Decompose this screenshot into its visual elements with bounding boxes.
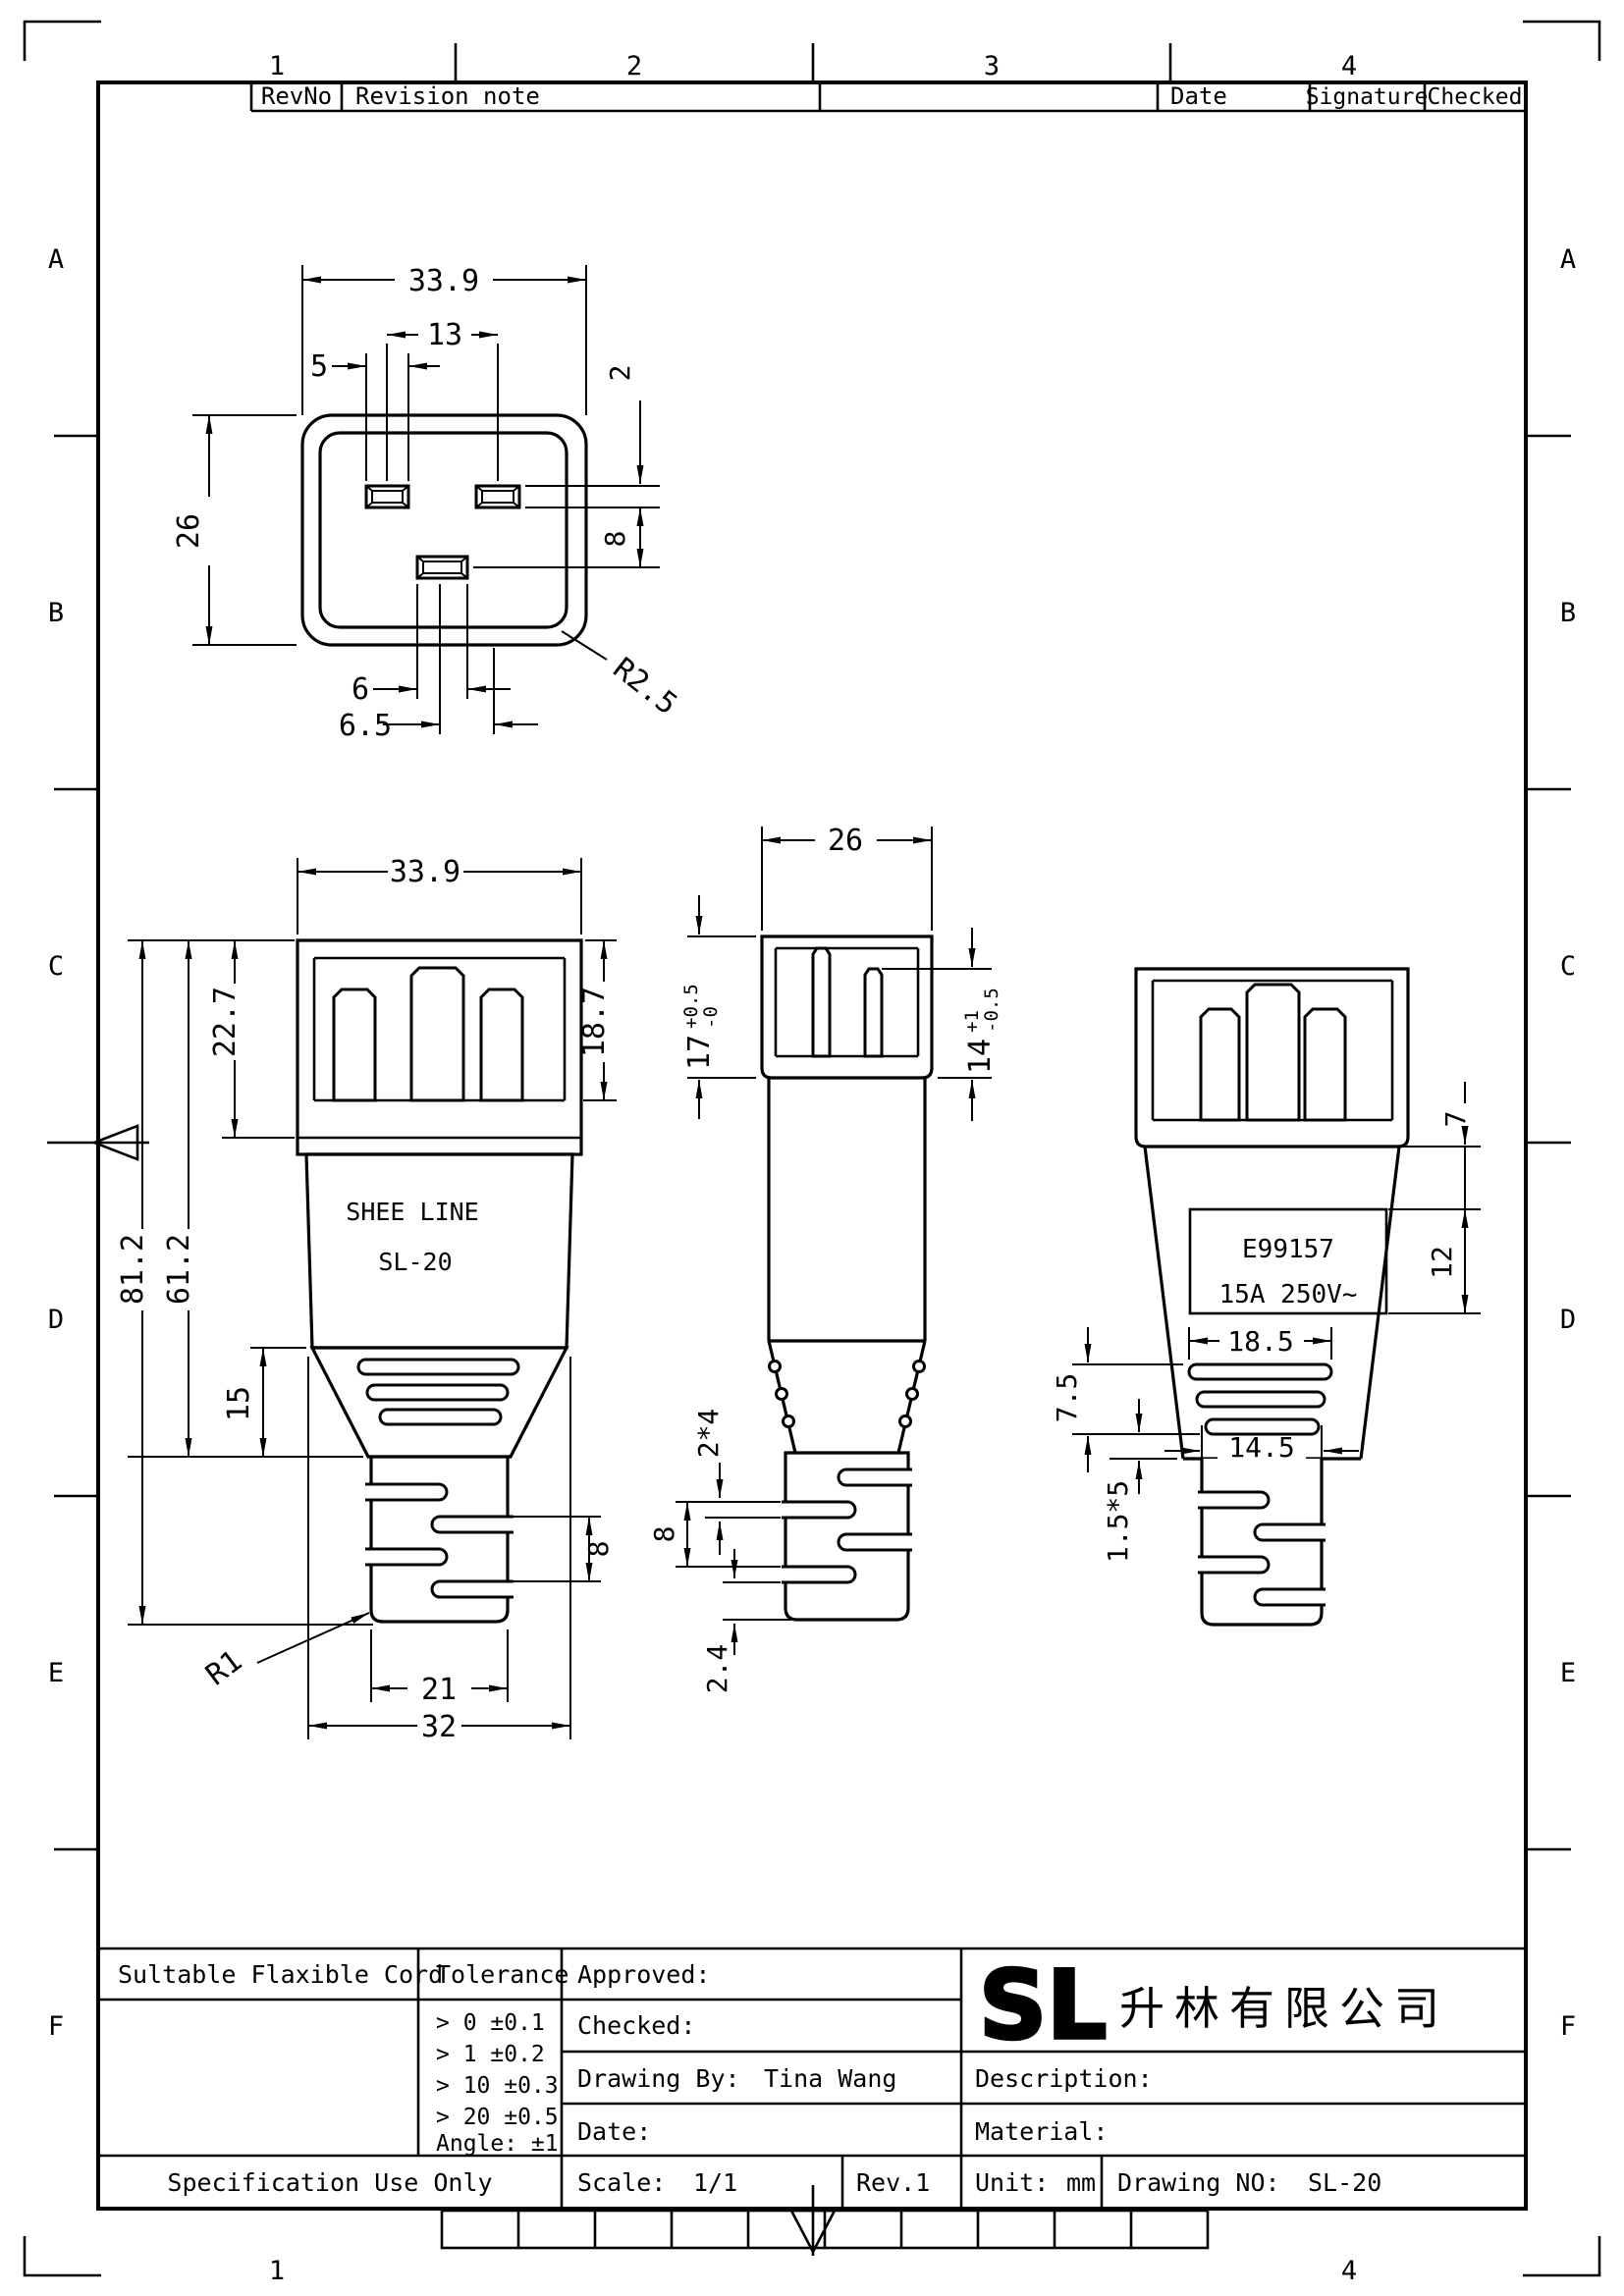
zone-row-b: B	[48, 598, 64, 628]
rear-view: E99157 15A 250V~ 7 12 18.5 7.5 1.5*5 14.…	[1051, 969, 1481, 1625]
zone-row-c: C	[48, 951, 64, 982]
scale-label: Scale:	[577, 2168, 666, 2197]
dim-side-shroud-tol-minus: -0	[700, 1006, 722, 1029]
dim-rear-label-height: 12	[1426, 1246, 1458, 1279]
cert-number: E99157	[1242, 1235, 1334, 1264]
dim-front-bottom-radius: R1	[199, 1644, 248, 1693]
company-logo-icon: SL	[979, 1950, 1107, 2060]
drawing-no-label: Drawing NO:	[1117, 2168, 1280, 2197]
dim-side-slot-pitch: 8	[648, 1526, 680, 1543]
corner-mark-top-left	[25, 22, 101, 61]
side-view-grip-bumps	[770, 1362, 925, 1427]
top-view-body-outline	[302, 415, 586, 645]
corner-mark-bottom-right	[1523, 2236, 1599, 2275]
dim-side-pin-length: 14 +1 -0.5	[961, 988, 1002, 1074]
dim-front-body-width: 32	[421, 1710, 457, 1744]
dim-side-shroud-tol-plus: +0.5	[680, 984, 702, 1029]
corner-mark-bottom-left	[25, 2236, 101, 2275]
tolerance-row: > 0 ±0.1	[436, 2010, 545, 2036]
revision-table: RevNo Revision note Date Signature Check…	[251, 82, 1526, 111]
drawing-no-value: SL-20	[1308, 2168, 1381, 2197]
revision-col-checked: Checked	[1428, 84, 1523, 110]
dim-rear-relief-width: 14.5	[1228, 1431, 1294, 1464]
dim-side-width: 26	[828, 824, 863, 858]
zone-row-c-right: C	[1560, 951, 1576, 982]
dim-side-slot-spec: 2*4	[692, 1409, 725, 1459]
dim-top-slot-thickness: 2	[604, 365, 636, 382]
dim-rear-rib-spec: 1.5*5	[1102, 1480, 1134, 1563]
dim-top-row-offset: 8	[599, 531, 631, 548]
center-mark-bottom-icon	[791, 2185, 835, 2256]
zone-row-d: D	[48, 1305, 64, 1335]
drawing-by-label: Drawing By:	[577, 2064, 740, 2093]
brand-line1: SHEE LINE	[346, 1198, 478, 1226]
top-view: 33.9 13 5 26 2 8 R2.5 6 6.5	[172, 264, 683, 743]
zone-row-e-right: E	[1560, 1658, 1576, 1688]
dim-top-width: 33.9	[408, 264, 479, 298]
company-name: 升林有限公司	[1119, 1982, 1449, 2035]
tolerance-title: Tolerance	[436, 1960, 568, 1989]
scale-value: 1/1	[693, 2168, 737, 2197]
dim-front-shroud-depth: 18.7	[577, 987, 612, 1057]
zone-row-f-right: F	[1560, 2011, 1576, 2042]
dim-top-earth-offset: 6.5	[339, 709, 392, 743]
zone-row-a: A	[48, 244, 64, 275]
dim-side-pin-tol-minus: -0.5	[981, 988, 1002, 1033]
zone-col-4-bottom: 4	[1341, 2256, 1357, 2286]
revision-value: Rev.1	[856, 2168, 930, 2197]
scale-strip	[442, 2211, 1208, 2248]
zone-col-1: 1	[269, 51, 285, 81]
zone-row-f: F	[48, 2011, 64, 2042]
spec-use-only: Specification Use Only	[167, 2168, 492, 2197]
side-view: 26 17 +0.5 -0 14 +1 -0.5 2*4 8 2.4	[648, 824, 1002, 1693]
tolerance-list: > 0 ±0.1 > 1 ±0.2 > 10 ±0.3 > 20 ±0.5 An…	[436, 2010, 559, 2157]
rear-view-vent-slots	[1189, 1364, 1331, 1434]
zone-col-3: 3	[984, 51, 1000, 81]
title-block: Sultable Flaxible Cord Tolerance > 0 ±0.…	[98, 1949, 1526, 2209]
front-view-vent-slots	[358, 1360, 518, 1424]
dim-front-grip-pitch: 8	[582, 1541, 615, 1558]
dim-side-pin-tol-plus: +1	[961, 1010, 983, 1033]
dim-side-pin-value: 14	[963, 1039, 998, 1074]
zone-row-b-right: B	[1560, 598, 1576, 628]
unit-label: Unit:	[975, 2168, 1049, 2197]
zone-labels: 1 2 3 4 1 4 A B C D E F A B C D E F	[48, 51, 1576, 2286]
dim-side-end-gap: 2.4	[701, 1644, 733, 1694]
approved-label: Approved:	[577, 1960, 710, 1989]
dim-top-height: 26	[172, 513, 206, 549]
dim-front-overall-length: 81.2	[116, 1234, 150, 1305]
dim-front-width: 33.9	[390, 855, 460, 889]
tolerance-row: Angle: ±1	[436, 2131, 559, 2157]
unit-value: mm	[1066, 2168, 1096, 2197]
revision-col-note: Revision note	[355, 82, 540, 110]
side-view-body	[769, 1078, 925, 1453]
revision-col-date: Date	[1170, 82, 1227, 110]
dim-front-body-length: 61.2	[162, 1234, 196, 1305]
tolerance-row: > 1 ±0.2	[436, 2042, 545, 2067]
material-label: Material:	[975, 2117, 1108, 2146]
corner-mark-top-right	[1523, 22, 1599, 61]
dim-front-shroud-height: 22.7	[208, 987, 243, 1057]
drawing-by-value: Tina Wang	[764, 2064, 896, 2093]
rating-text: 15A 250V~	[1219, 1280, 1358, 1309]
dim-top-pin-pitch: 13	[427, 318, 462, 352]
dim-top-pin-width: 5	[310, 349, 328, 384]
checked-label: Checked:	[577, 2011, 695, 2040]
engineering-drawing-sheet: 1 2 3 4 1 4 A B C D E F A B C D E F RevN…	[0, 0, 1624, 2296]
tolerance-row: > 20 ±0.5	[436, 2105, 559, 2130]
brand-line2: SL-20	[378, 1248, 452, 1276]
cord-label: Sultable Flaxible Cord	[118, 1960, 443, 1989]
dim-rear-label-offset: 7	[1439, 1111, 1472, 1128]
dim-rear-vent-width: 18.5	[1227, 1325, 1293, 1358]
zone-row-a-right: A	[1560, 244, 1576, 275]
dim-top-corner-radius: R2.5	[607, 651, 683, 721]
dim-side-shroud-length: 17 +0.5 -0	[680, 984, 722, 1070]
dim-front-relief-width: 21	[421, 1673, 457, 1707]
dim-top-earth-width: 6	[352, 672, 369, 707]
zone-row-d-right: D	[1560, 1305, 1576, 1335]
zone-col-1-bottom: 1	[269, 2256, 285, 2286]
dim-rear-vent-height: 7.5	[1051, 1373, 1083, 1423]
description-label: Description:	[975, 2064, 1153, 2093]
zone-row-e: E	[48, 1658, 64, 1688]
date-label: Date:	[577, 2117, 651, 2146]
tolerance-row: > 10 ±0.3	[436, 2073, 559, 2099]
dim-side-shroud-value: 17	[682, 1035, 717, 1070]
revision-col-revno: RevNo	[261, 82, 332, 110]
revision-col-signature: Signature	[1306, 84, 1429, 110]
sheet-frame: 1 2 3 4 1 4 A B C D E F A B C D E F	[25, 22, 1599, 2286]
front-view: SHEE LINE SL-20 33.9 22.7 18.7	[116, 855, 617, 1744]
zone-col-2: 2	[626, 51, 642, 81]
zone-col-4: 4	[1341, 51, 1357, 81]
dim-front-taper-length: 15	[222, 1386, 256, 1421]
